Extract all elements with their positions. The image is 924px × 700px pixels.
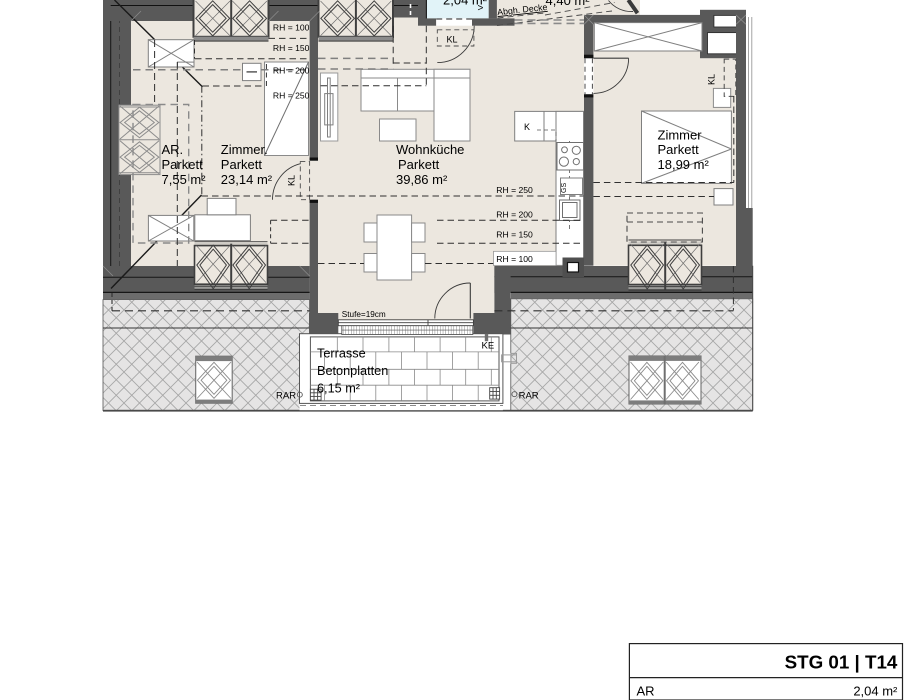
svg-text:RH = 100: RH = 100 [496, 254, 533, 264]
svg-text:18,99 m²: 18,99 m² [658, 157, 710, 172]
svg-text:RH = 250: RH = 250 [496, 185, 533, 195]
svg-text:RAR: RAR [276, 390, 296, 401]
svg-text:>: > [478, 3, 484, 14]
svg-text:39,86 m²: 39,86 m² [396, 172, 448, 187]
svg-text:RH = 250: RH = 250 [273, 91, 310, 101]
svg-text:RH = 100: RH = 100 [273, 22, 310, 32]
svg-text:RAR: RAR [519, 390, 539, 401]
svg-text:23,14 m²: 23,14 m² [221, 172, 273, 187]
svg-text:STG 01 | T14: STG 01 | T14 [785, 652, 898, 673]
svg-text:Parkett: Parkett [658, 142, 700, 157]
svg-text:KL: KL [287, 175, 297, 186]
svg-text:KE: KE [482, 340, 495, 351]
svg-text:Parkett: Parkett [398, 157, 440, 172]
svg-text:K: K [524, 122, 530, 132]
svg-text:GS: GS [561, 183, 568, 193]
svg-text:2,04 m²: 2,04 m² [853, 684, 898, 699]
svg-text:4,40 m²: 4,40 m² [546, 0, 591, 8]
svg-text:Parkett: Parkett [221, 157, 263, 172]
svg-text:KL: KL [707, 74, 717, 85]
svg-text:RH = 200: RH = 200 [273, 66, 310, 76]
svg-text:Wohnküche: Wohnküche [396, 142, 464, 157]
svg-text:Terrasse: Terrasse [317, 347, 366, 361]
svg-text:Zimmer.: Zimmer. [221, 142, 268, 157]
svg-text:6,15 m²: 6,15 m² [317, 382, 360, 396]
svg-text:RH = 200: RH = 200 [496, 209, 533, 219]
svg-text:AR: AR [637, 683, 655, 698]
svg-text:Stufe=19cm: Stufe=19cm [342, 310, 386, 319]
svg-text:KL: KL [447, 35, 458, 45]
svg-text:RH = 150: RH = 150 [496, 230, 533, 240]
svg-text:Zimmer: Zimmer [658, 127, 703, 142]
svg-text:7,55 m²: 7,55 m² [162, 172, 207, 187]
svg-text:Betonplatten: Betonplatten [317, 364, 388, 378]
svg-text:Parkett: Parkett [162, 157, 204, 172]
svg-text:RH = 150: RH = 150 [273, 43, 310, 53]
svg-text:AR.: AR. [162, 142, 184, 157]
